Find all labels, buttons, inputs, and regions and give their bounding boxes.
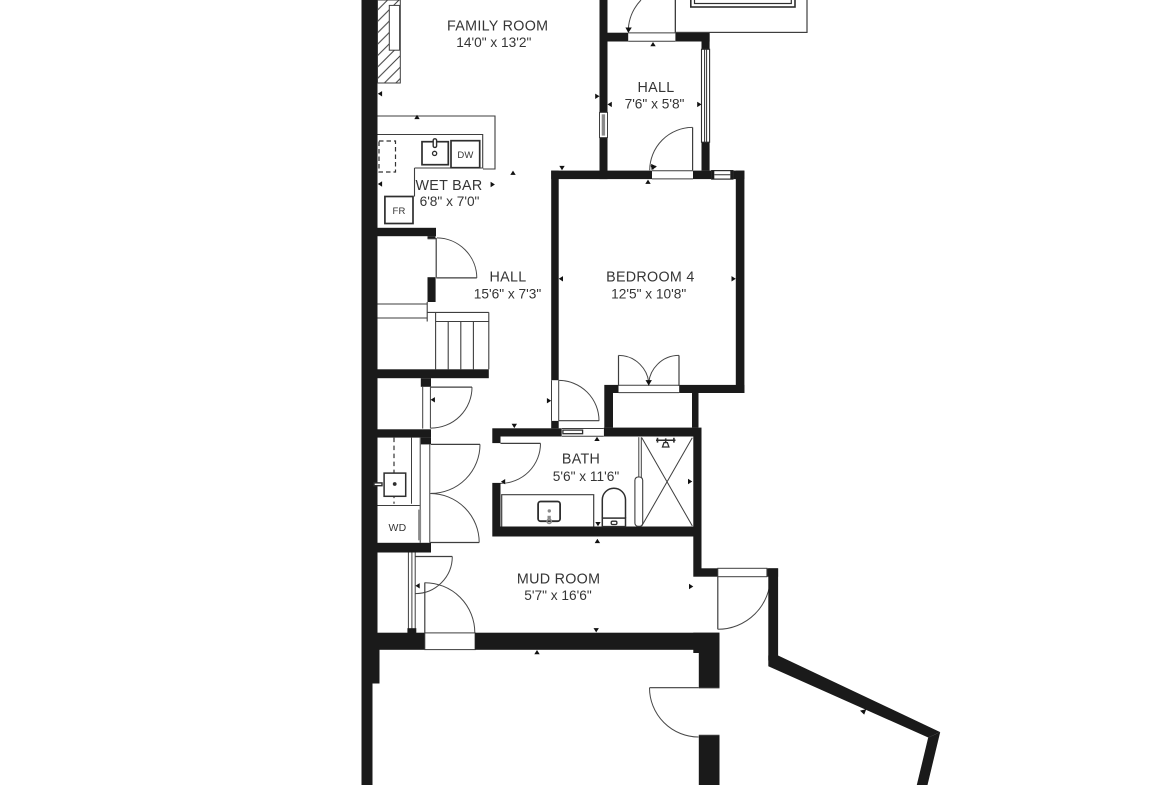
- svg-text:7'6" x 5'8": 7'6" x 5'8": [625, 97, 685, 112]
- svg-text:HALL: HALL: [490, 270, 527, 286]
- svg-text:MUD ROOM: MUD ROOM: [517, 572, 600, 588]
- svg-text:BATH: BATH: [562, 452, 600, 468]
- svg-text:DW: DW: [457, 150, 473, 161]
- svg-text:BEDROOM 4: BEDROOM 4: [606, 270, 695, 286]
- svg-text:15'6" x 7'3": 15'6" x 7'3": [474, 287, 542, 302]
- svg-text:5'6" x 11'6": 5'6" x 11'6": [553, 469, 620, 484]
- svg-text:12'5" x 10'8": 12'5" x 10'8": [611, 287, 686, 302]
- svg-text:FAMILY ROOM: FAMILY ROOM: [447, 19, 548, 35]
- svg-text:WD: WD: [389, 522, 407, 534]
- svg-text:FR: FR: [392, 206, 405, 217]
- svg-text:6'8" x 7'0": 6'8" x 7'0": [420, 194, 480, 209]
- svg-text:WET BAR: WET BAR: [416, 178, 483, 194]
- svg-text:HALL: HALL: [638, 80, 675, 96]
- svg-text:5'7" x 16'6": 5'7" x 16'6": [524, 588, 592, 603]
- svg-text:14'0" x 13'2": 14'0" x 13'2": [456, 35, 531, 50]
